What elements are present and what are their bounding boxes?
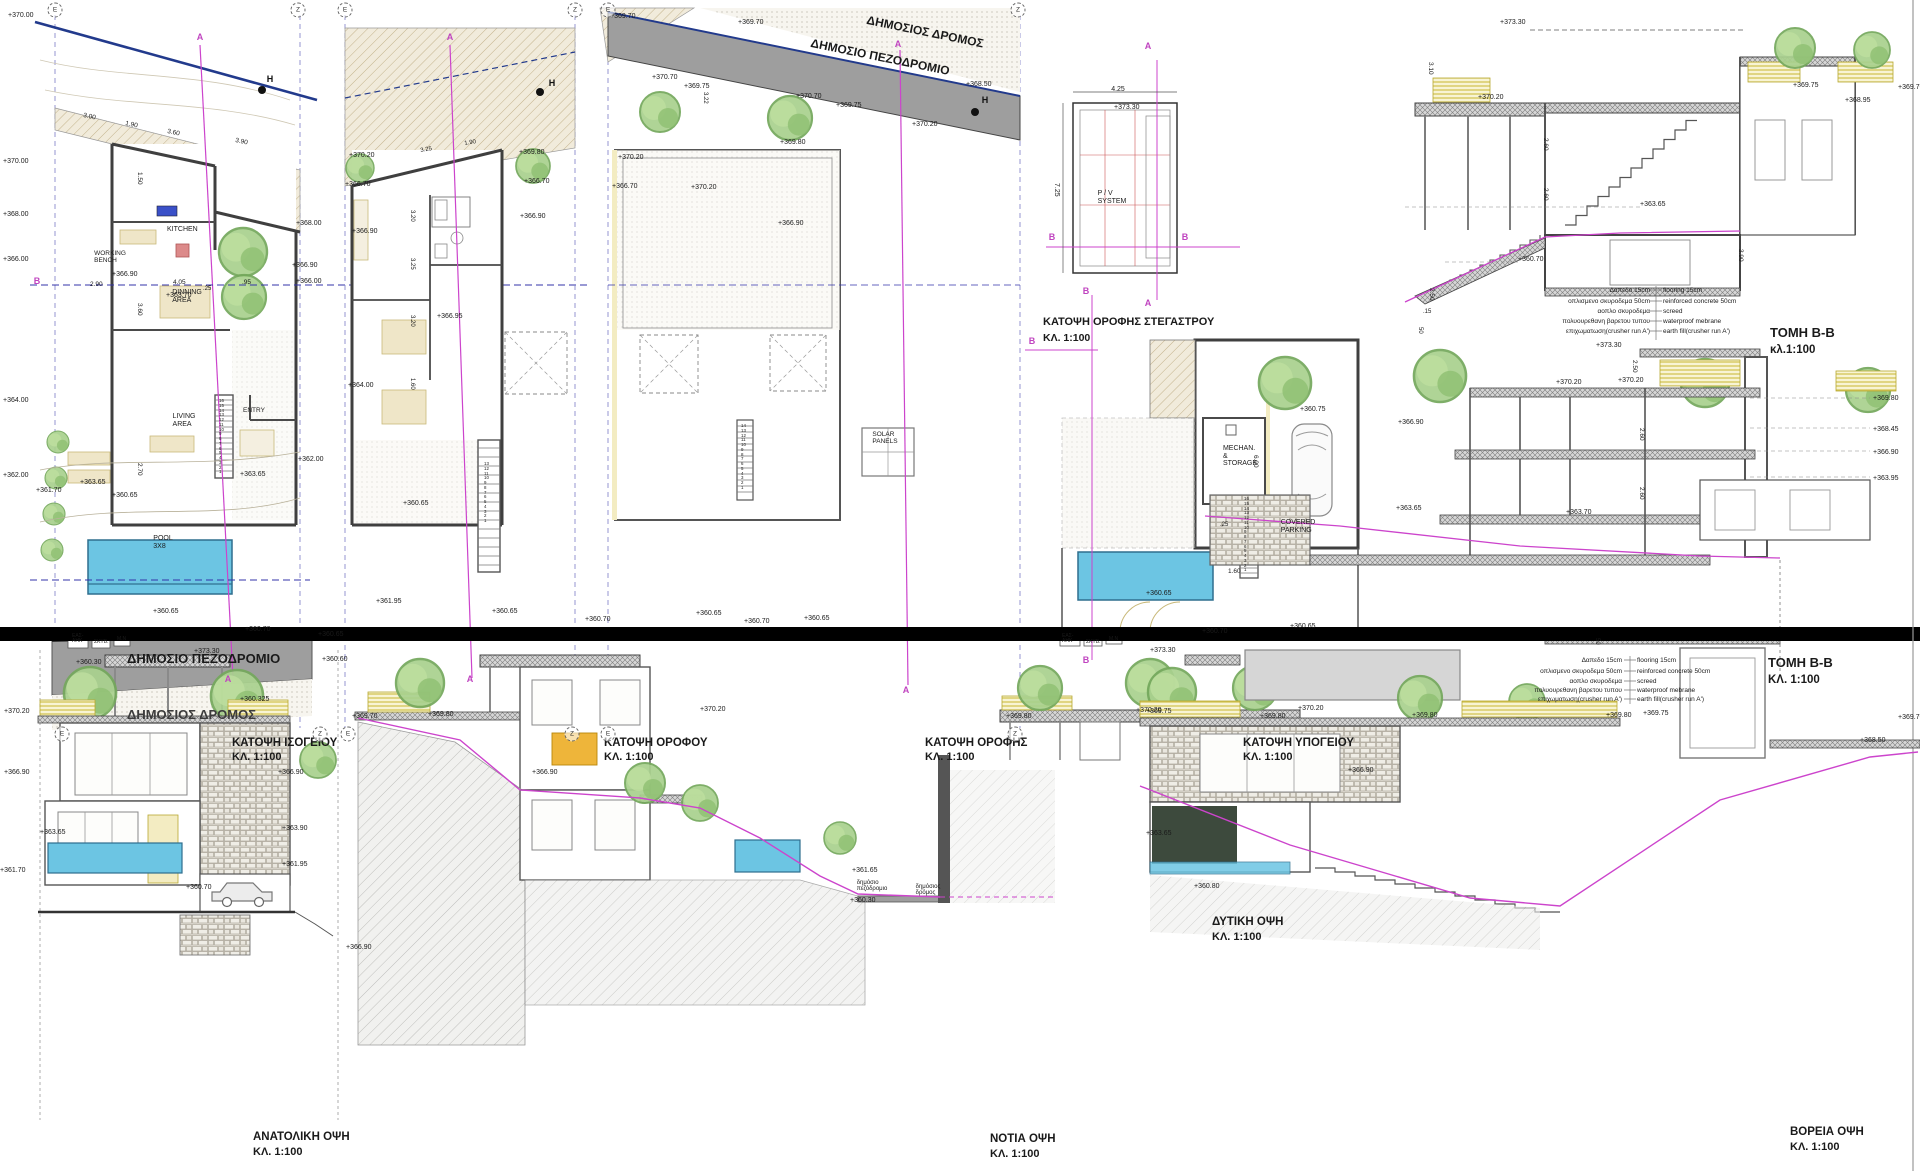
- plan-canopy-roof: [1046, 60, 1240, 300]
- tree: [824, 822, 856, 854]
- tree: [1414, 350, 1466, 402]
- pool-section: [735, 840, 800, 872]
- roof-slab: [1470, 388, 1760, 397]
- south-elevation: [355, 655, 1055, 1045]
- dark-opening: [1152, 806, 1237, 864]
- stone-volume: [200, 723, 290, 885]
- stairs: [215, 395, 233, 478]
- kitchen-sink: [157, 206, 177, 216]
- tree: [1854, 32, 1890, 68]
- site-top-boundary: [35, 22, 317, 100]
- tree: [1775, 28, 1815, 68]
- sofa: [150, 436, 194, 452]
- ground-hatch: [525, 880, 865, 1005]
- section-line-a: [900, 50, 908, 685]
- plan-first-floor: [345, 15, 575, 728]
- ground-hatch: [358, 722, 525, 1045]
- pool-section: [48, 843, 182, 873]
- tree: [682, 785, 718, 821]
- guardrail: [1660, 360, 1740, 386]
- tree: [219, 228, 267, 276]
- plan-roof: [600, 8, 1020, 728]
- east-elevation: [38, 650, 338, 1120]
- foundation: [180, 915, 250, 955]
- tree: [516, 149, 550, 183]
- pool: [88, 540, 232, 594]
- bed: [382, 390, 426, 424]
- stairs: [478, 440, 500, 572]
- tree: [300, 742, 336, 778]
- north-elevation: [1140, 648, 1920, 950]
- tree: [1398, 676, 1442, 720]
- tree: [45, 467, 67, 489]
- guardrail: [1433, 78, 1490, 102]
- ground-hatch: [1150, 875, 1540, 950]
- pool-section: [1150, 862, 1290, 874]
- drawing-sheet: ΚΑΤΟΨΗ ΙΣΟΓΕΙΟΥΚΛ. 1:100ΚΑΤΟΨΗ ΟΡΟΦΟΥΚΛ.…: [0, 0, 1920, 1171]
- staircase: [1565, 121, 1697, 226]
- stone-wall: [1210, 495, 1310, 565]
- retaining-wall: [938, 755, 950, 903]
- guardrail: [1836, 371, 1896, 391]
- section-bb-1: [1405, 28, 1893, 340]
- plan-basement: [1025, 295, 1358, 660]
- floor-slab: [1455, 450, 1755, 459]
- drawing-canvas: [0, 0, 1920, 1171]
- window-frame: [1680, 648, 1765, 758]
- bed: [382, 320, 426, 354]
- tree: [47, 431, 69, 453]
- tree: [640, 92, 680, 132]
- canopy-slab: [1415, 103, 1545, 116]
- tree: [768, 96, 812, 140]
- tree: [41, 539, 63, 561]
- mech-room: [1203, 418, 1265, 504]
- tree: [43, 503, 65, 525]
- tree: [1018, 666, 1062, 710]
- tree: [396, 659, 444, 707]
- canopy-slab: [105, 655, 230, 667]
- notes-leader: [1624, 656, 1636, 704]
- tree: [222, 275, 266, 319]
- pool: [1078, 552, 1213, 600]
- dining-table: [160, 286, 210, 318]
- orange-window: [552, 733, 597, 765]
- section-divider: [0, 627, 1920, 641]
- tree: [1259, 357, 1311, 409]
- tree: [346, 154, 374, 182]
- stove: [176, 244, 189, 257]
